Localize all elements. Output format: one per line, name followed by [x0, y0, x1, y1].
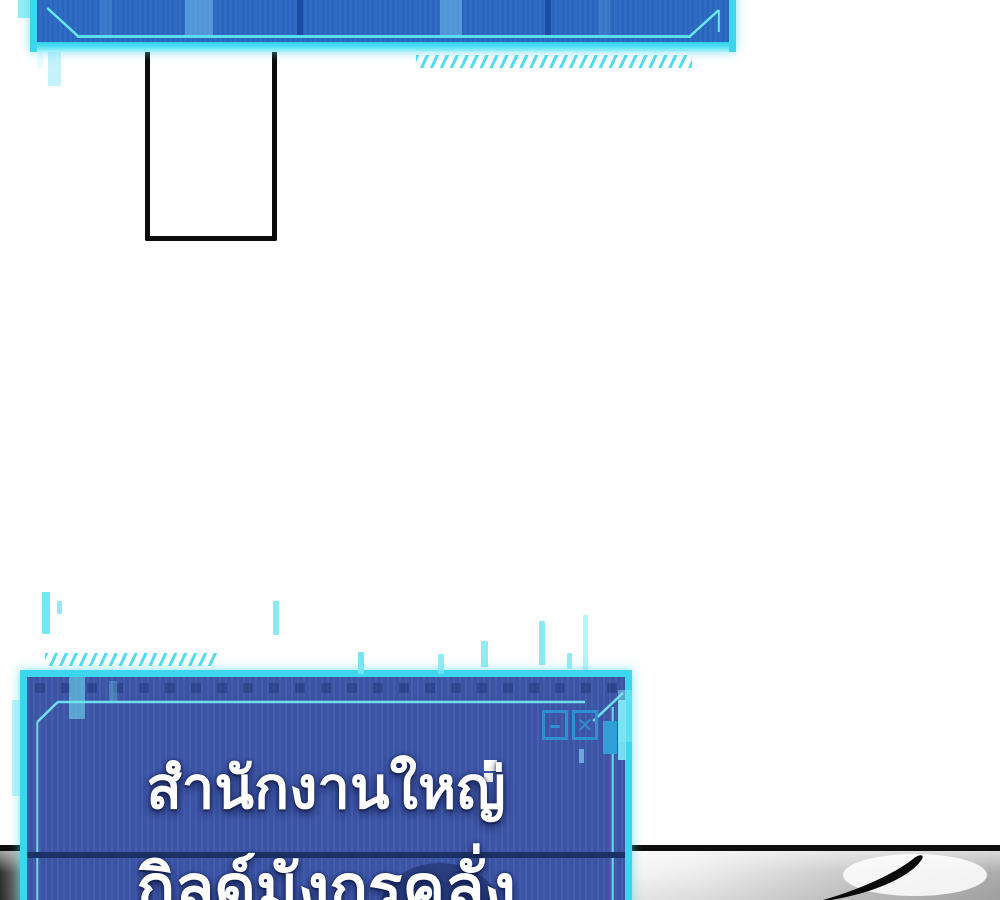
glitch-bar: [42, 592, 50, 634]
speech-bubble: [145, 48, 277, 241]
window-text-line2: กิลด์มังกรคลั่ง: [27, 853, 625, 900]
glitch-drip: [37, 52, 43, 68]
hatch-marks-top: [416, 55, 692, 68]
close-icon: ✕: [577, 713, 594, 737]
system-window-bottom: – ✕ สำนักงานใหญ่ กิลด์มังกรคลั่ง: [20, 670, 632, 900]
minimize-icon: –: [549, 711, 561, 739]
glitch-bar: [481, 641, 488, 667]
close-button[interactable]: ✕: [572, 710, 598, 740]
window-text-line1: สำนักงานใหญ่: [27, 755, 625, 822]
system-window-top: [30, 0, 736, 52]
window-side-tab: [18, 0, 30, 18]
window-side-tab: [12, 700, 20, 796]
glitch-bar: [567, 653, 572, 669]
glitch-bar: [273, 601, 279, 635]
sword-blade: [815, 851, 1000, 900]
hatch-marks-bottom: [45, 653, 218, 666]
comic-page: – ✕ สำนักงานใหญ่ กิลด์มังกรคลั่ง: [0, 0, 1000, 900]
window-side-tab: [618, 700, 626, 760]
glitch-bar: [539, 621, 545, 665]
window-decoration-block: [603, 721, 617, 754]
minimize-button[interactable]: –: [542, 710, 568, 740]
glitch-bar: [583, 615, 588, 670]
glitch-drip: [48, 52, 61, 86]
glitch-bar: [438, 654, 444, 674]
glitch-bar: [358, 652, 364, 674]
glitch-bar: [57, 601, 62, 614]
window-bottom-border: [37, 42, 729, 52]
